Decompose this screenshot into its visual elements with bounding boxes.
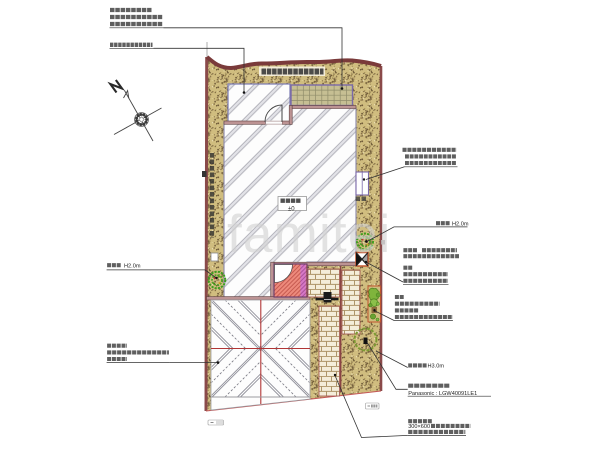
svg-text:300×600: 300×600 bbox=[408, 424, 430, 430]
svg-text:famitei: famitei bbox=[227, 205, 392, 264]
svg-text:H3.0m: H3.0m bbox=[428, 364, 445, 370]
svg-text:H2.0m: H2.0m bbox=[124, 264, 141, 270]
